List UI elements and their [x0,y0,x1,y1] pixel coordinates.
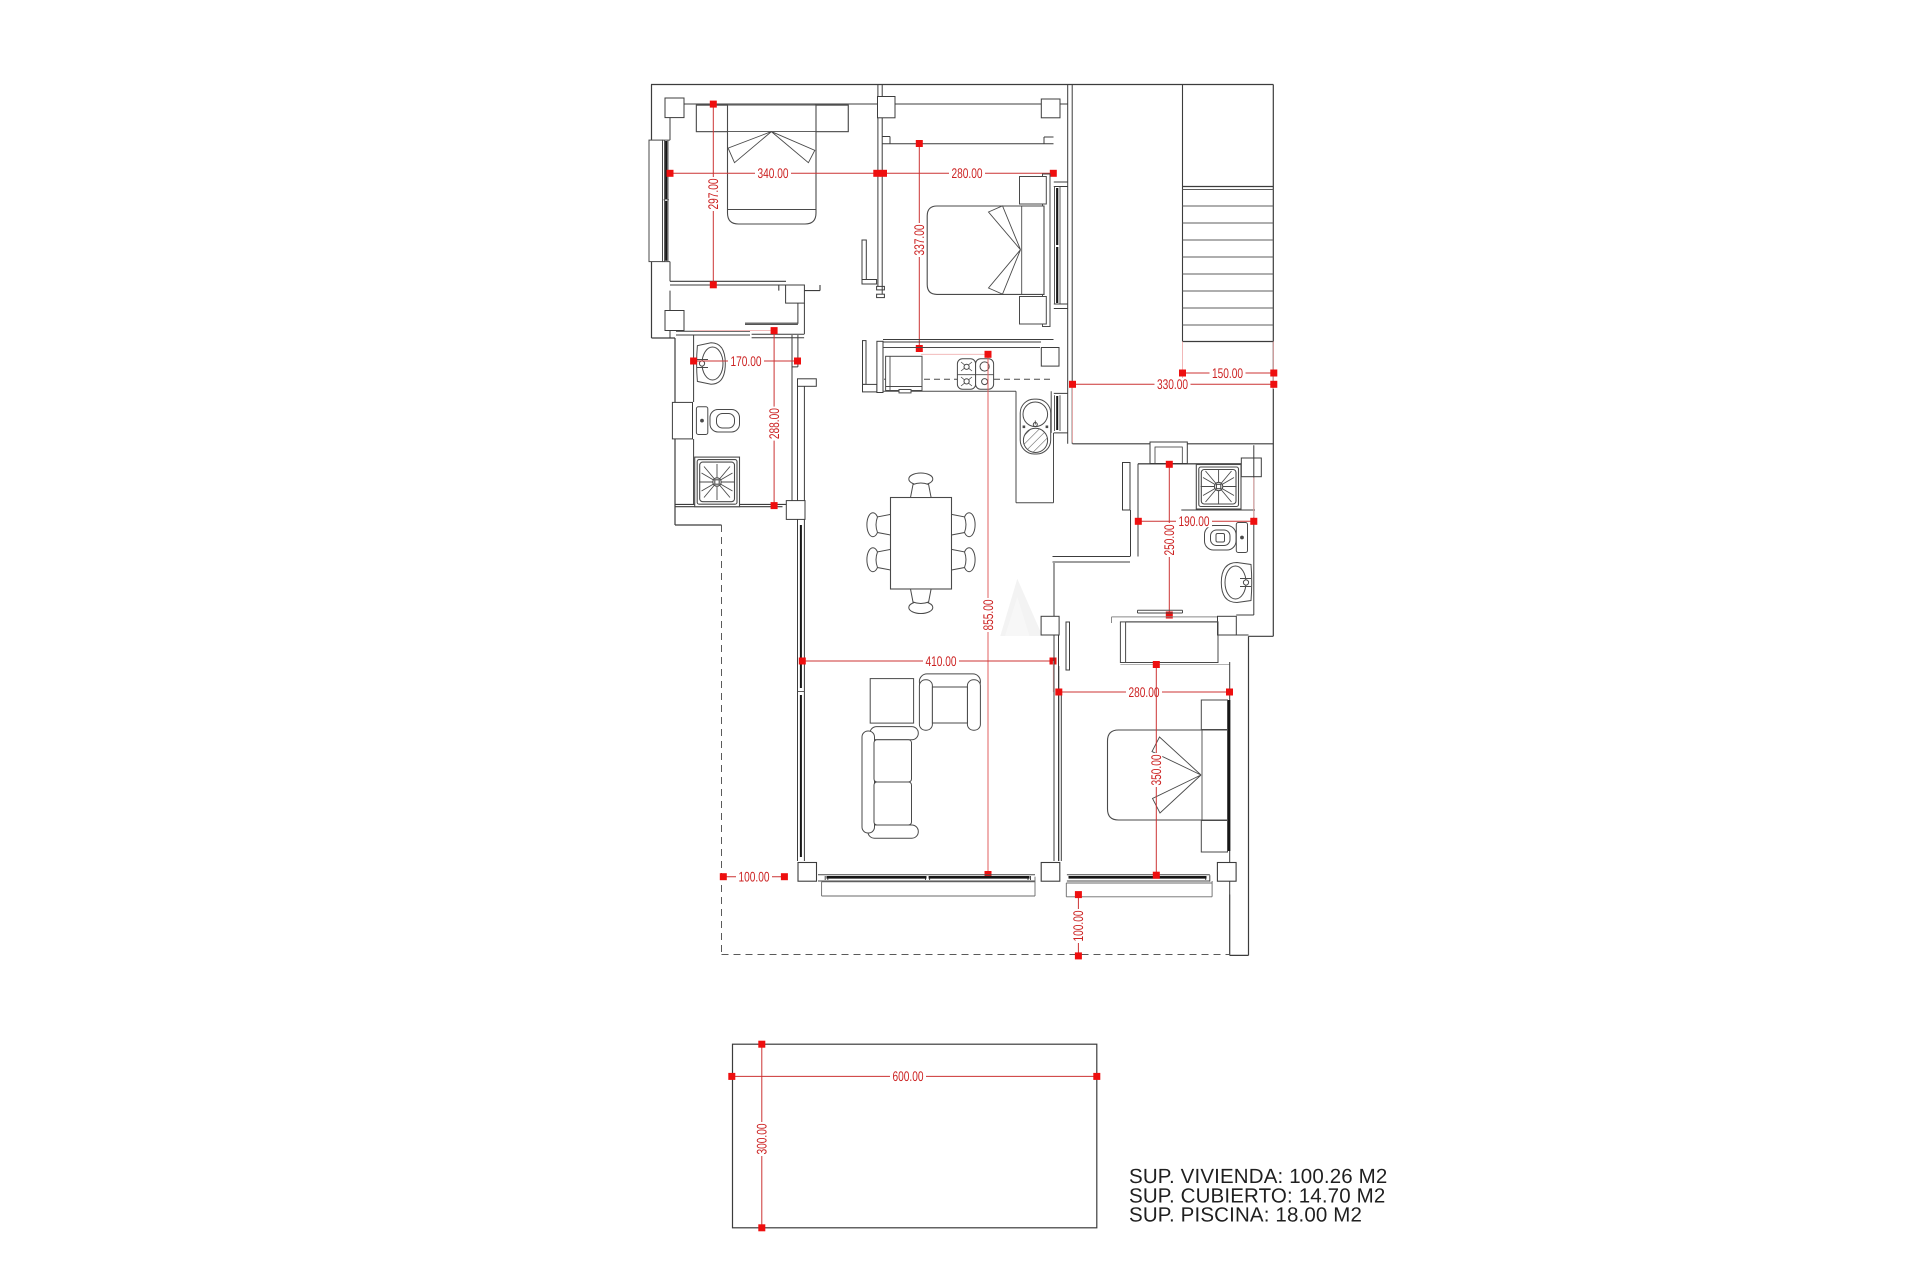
svg-text:300.00: 300.00 [754,1123,770,1154]
svg-text:170.00: 170.00 [731,353,762,369]
svg-text:410.00: 410.00 [926,653,957,669]
svg-text:350.00: 350.00 [1148,754,1164,785]
svg-text:250.00: 250.00 [1161,524,1177,555]
svg-text:288.00: 288.00 [766,408,782,439]
svg-text:330.00: 330.00 [1157,376,1188,392]
svg-text:190.00: 190.00 [1179,513,1210,529]
svg-text:600.00: 600.00 [893,1068,924,1084]
svg-text:150.00: 150.00 [1212,365,1243,381]
svg-text:100.00: 100.00 [1070,910,1086,941]
svg-text:337.00: 337.00 [911,224,927,255]
svg-text:100.00: 100.00 [739,869,770,885]
svg-text:855.00: 855.00 [980,599,996,630]
svg-text:297.00: 297.00 [705,178,721,209]
svg-text:340.00: 340.00 [758,165,789,181]
svg-text:SUP. PISCINA: 18.00 M2: SUP. PISCINA: 18.00 M2 [1129,1204,1362,1227]
svg-text:280.00: 280.00 [1129,684,1160,700]
svg-text:280.00: 280.00 [952,165,983,181]
